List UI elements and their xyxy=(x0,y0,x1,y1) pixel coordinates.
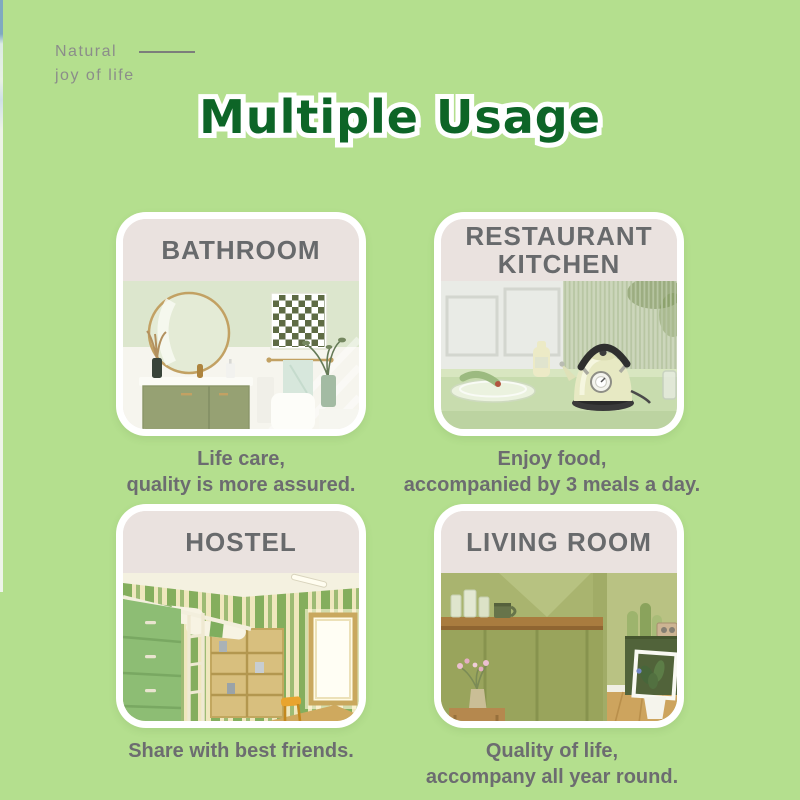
card-bathroom: BATHROOM xyxy=(116,212,366,436)
living-room-photo-illustration xyxy=(441,573,677,721)
card-cell-restaurant-kitchen: RESTAURANT KITCHEN xyxy=(434,212,684,498)
card-title-restaurant-kitchen: RESTAURANT KITCHEN xyxy=(441,219,677,281)
side-cabinet xyxy=(319,409,359,429)
vanity-cabinet xyxy=(139,377,253,429)
green-lockers xyxy=(123,599,181,721)
card-restaurant-kitchen: RESTAURANT KITCHEN xyxy=(434,212,684,436)
kitchen-photo-illustration xyxy=(441,281,677,429)
brand-rule xyxy=(139,51,195,53)
page-title: Multiple Usage Multiple Usage xyxy=(0,90,800,150)
card-title-bathroom: BATHROOM xyxy=(123,219,359,281)
caption-living-room: Quality of life, accompany all year roun… xyxy=(394,739,710,790)
living-room-photo xyxy=(441,573,677,721)
hostel-photo xyxy=(123,573,359,721)
card-living-room: LIVING ROOM xyxy=(434,504,684,728)
checker-wall-art xyxy=(271,293,327,349)
figurine xyxy=(197,364,203,378)
bar-counter xyxy=(441,617,603,721)
caption-restaurant-kitchen: Enjoy food, accompanied by 3 meals a day… xyxy=(394,447,710,498)
page-title-text: Multiple Usage xyxy=(0,90,800,144)
card-cell-bathroom: BATHROOM xyxy=(116,212,366,498)
left-edge-sliver xyxy=(0,0,3,592)
hostel-photo-illustration xyxy=(123,573,359,721)
promo-canvas: Natural joy of life Multiple Usage Multi… xyxy=(0,0,800,800)
brand-line2: joy of life xyxy=(55,64,195,88)
bathroom-photo-illustration xyxy=(123,281,359,429)
card-title-hostel: HOSTEL xyxy=(123,511,359,573)
wooden-shelving xyxy=(211,629,283,717)
brand-line1: Natural xyxy=(55,40,117,64)
bathroom-photo xyxy=(123,281,359,429)
glass-jar xyxy=(663,371,676,399)
card-hostel: HOSTEL xyxy=(116,504,366,728)
card-cell-living-room: LIVING ROOM xyxy=(434,504,684,790)
card-title-living-room: LIVING ROOM xyxy=(441,511,677,573)
radio xyxy=(657,623,677,637)
brand-tagline: Natural joy of life xyxy=(55,40,195,88)
caption-bathroom: Life care, quality is more assured. xyxy=(83,447,399,498)
card-cell-hostel: HOSTEL xyxy=(116,504,366,765)
kitchen-photo xyxy=(441,281,677,429)
green-chest xyxy=(625,636,677,698)
window xyxy=(305,609,359,709)
caption-hostel: Share with best friends. xyxy=(83,739,399,765)
